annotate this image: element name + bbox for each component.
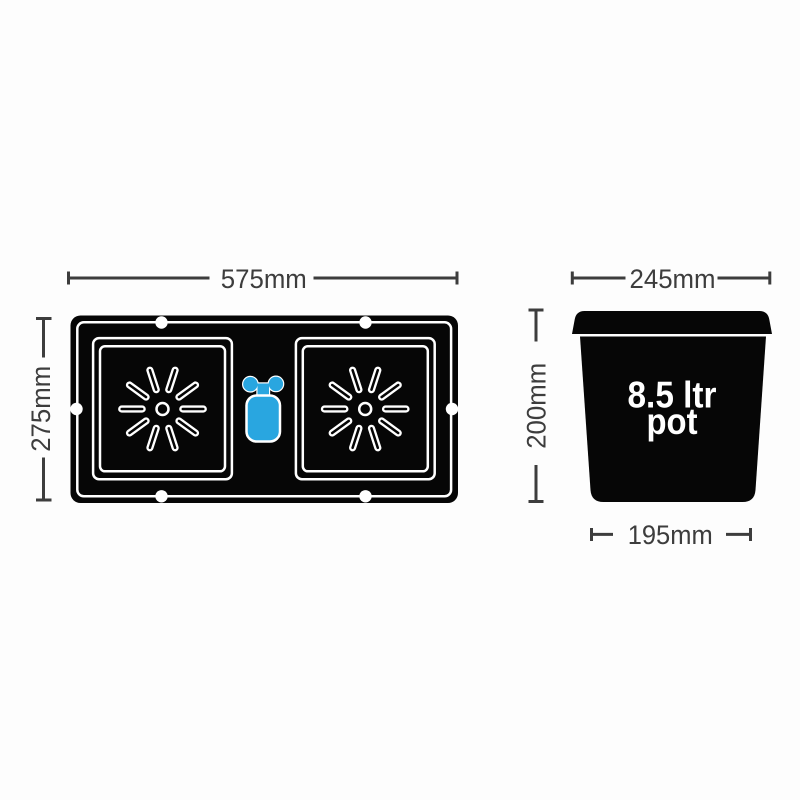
svg-text:pot: pot (647, 401, 698, 442)
svg-text:245mm: 245mm (630, 264, 716, 294)
svg-text:200mm: 200mm (522, 363, 552, 449)
svg-text:195mm: 195mm (628, 520, 713, 550)
svg-text:575mm: 575mm (221, 264, 307, 294)
svg-text:275mm: 275mm (26, 366, 56, 452)
